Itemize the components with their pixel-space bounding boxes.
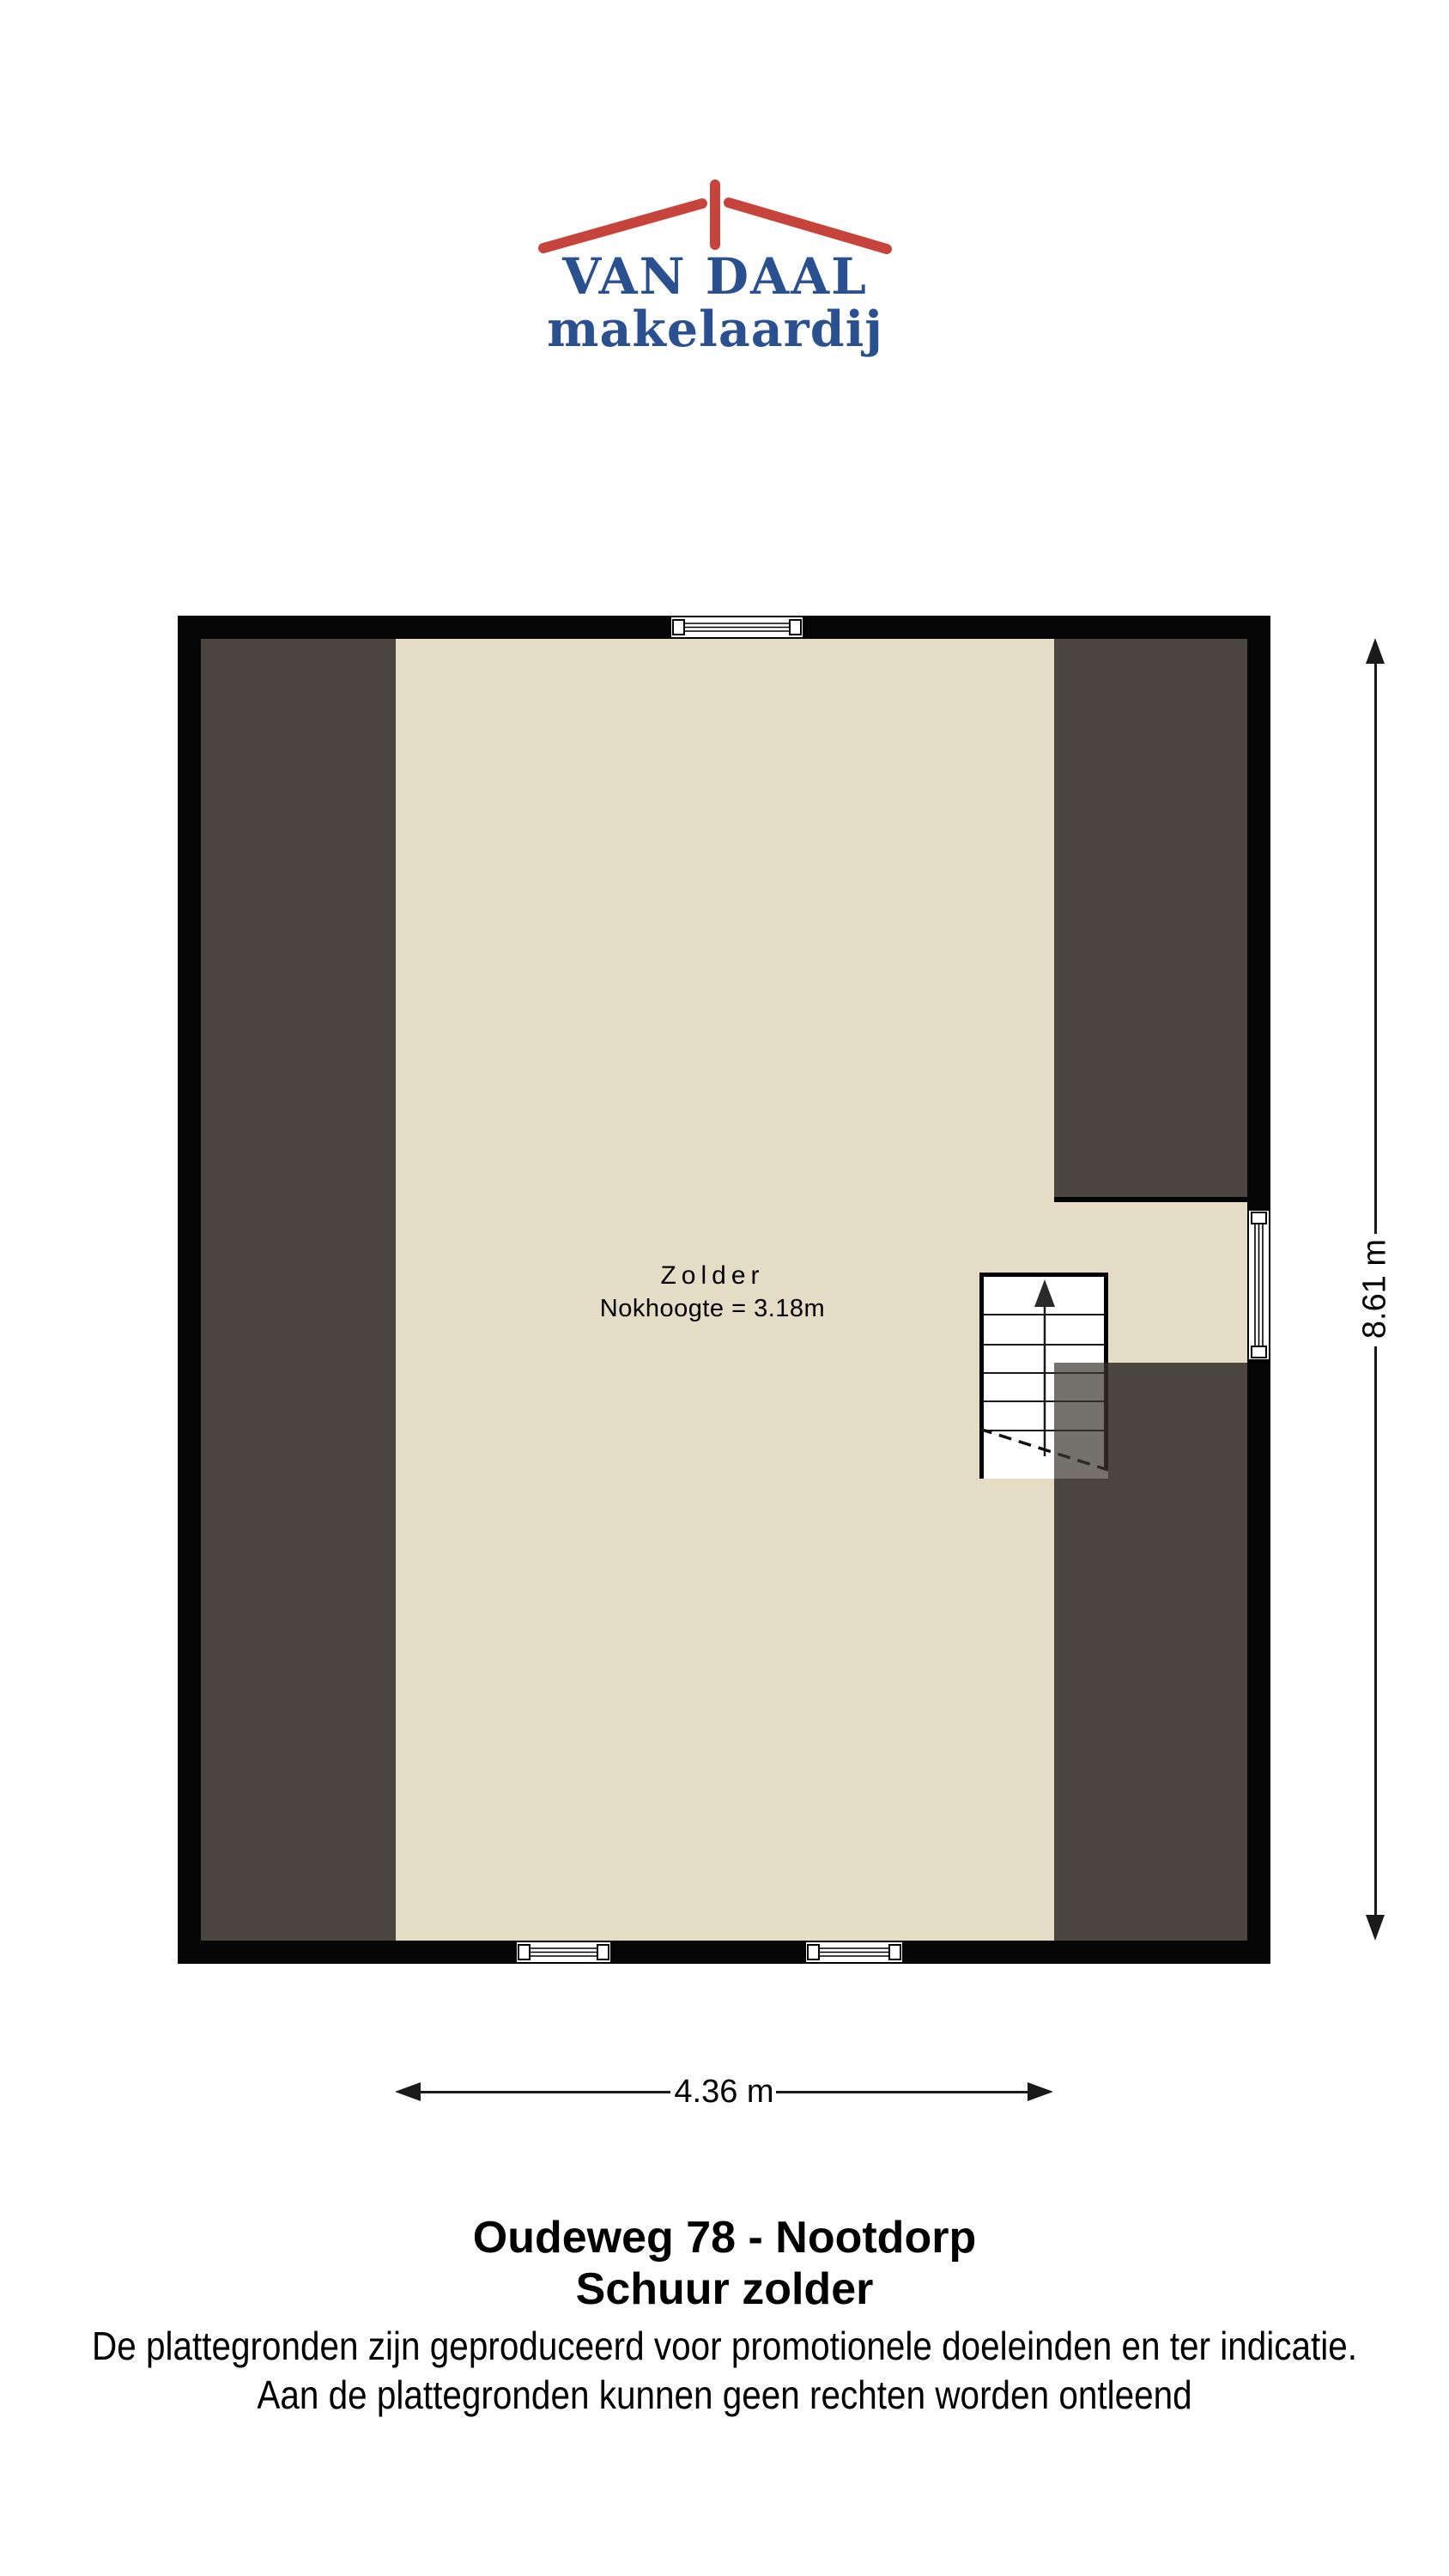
room-label: Zolder Nokhoogte = 3.18m: [201, 1260, 1224, 1325]
window-right: [1247, 1209, 1270, 1361]
dimension-vertical: 8.61 m: [1359, 638, 1391, 1941]
roof-slope-top-right: [1054, 639, 1247, 1202]
brand-name: VAN DAAL: [0, 247, 1430, 306]
dimension-line-segment: [1374, 1346, 1377, 1935]
floorplan: Zolder Nokhoogte = 3.18m: [178, 616, 1270, 1964]
dimension-vertical-label: 8.61 m: [1357, 1239, 1394, 1339]
brand-tagline: makelaardij: [0, 301, 1430, 358]
dimension-horizontal: 4.36 m: [395, 2075, 1053, 2108]
disclaimer-line-1: De plattegronden zijn geproduceerd voor …: [87, 2322, 1361, 2371]
footer-address: Oudeweg 78 - Nootdorp: [0, 2212, 1449, 2263]
footer-floor-name: Schuur zolder: [0, 2263, 1449, 2315]
attic-floor-area: Zolder Nokhoogte = 3.18m: [201, 639, 1247, 1941]
window-bottom-right: [804, 1941, 904, 1964]
dimension-arrow-down-icon: [1366, 1915, 1385, 1941]
window-bottom-left: [515, 1941, 612, 1964]
dimension-arrow-right-icon: [1028, 2082, 1053, 2101]
disclaimer-line-2: Aan de plattegronden kunnen geen rechten…: [87, 2371, 1361, 2420]
disclaimer: De plattegronden zijn geproduceerd voor …: [87, 2322, 1361, 2420]
window-top: [670, 616, 804, 639]
roof-overlap-shade: [1054, 1363, 1108, 1479]
ridge-height-label: Nokhoogte = 3.18m: [201, 1292, 1224, 1325]
dimension-line-segment: [776, 2091, 1048, 2093]
floorplan-page: VAN DAAL makelaardij: [0, 0, 1449, 2576]
dimension-line-segment: [1374, 643, 1377, 1234]
room-name: Zolder: [201, 1260, 1224, 1292]
